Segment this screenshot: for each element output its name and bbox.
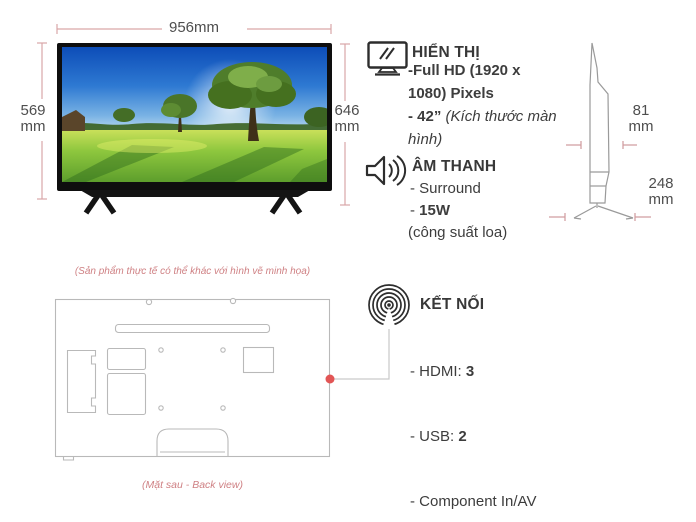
left-height-dimension-label: 569 mm [10,103,56,135]
audio-section-title: ÂM THANH [412,158,496,176]
tv-back-view [56,298,330,460]
audio-power-note: (công suất loa) [408,222,507,244]
width-dimension-label: 956mm [57,20,331,36]
callout-red-dot [326,375,335,384]
list-item: - Component In/AV [410,491,554,513]
depth-dimension-label: 81 mm [618,103,664,135]
tv-stand-legs [80,190,310,213]
landscape-picture [62,47,327,182]
back-view-caption: (Mặt sau - Back view) [40,479,345,491]
wifi-signal-icon [366,283,412,329]
connectivity-list: - HDMI: 3 - USB: 2 - Component In/AV - L… [410,318,554,522]
disclaimer-caption: (Sản phẩm thực tế có thể khác với hình v… [40,266,345,277]
speaker-icon [364,153,410,189]
monitor-icon [367,41,409,77]
list-item: - HDMI: 3 [410,361,554,383]
right-height-dimension-label: 646 mm [324,103,370,135]
display-resolution-line1: -Full HD (1920 x [408,60,521,82]
audio-surround-line: - Surround [410,178,481,200]
product-spec-diagram: 956mm 569 mm 646 mm 81 mm 248 mm HIỂN TH… [0,0,696,522]
tv-screen-image [62,47,327,182]
stand-depth-dimension-label: 248 mm [636,176,686,208]
audio-power-line: - 15W [410,200,450,222]
tv-front-view [57,43,332,191]
connect-section-title: KẾT NỐI [420,296,484,314]
list-item: - USB: 2 [410,426,554,448]
display-resolution-line2: 1080) Pixels [408,83,494,105]
display-size-line: - 42” (Kích thước màn [408,106,557,128]
display-size-line2: hình) [408,129,442,151]
